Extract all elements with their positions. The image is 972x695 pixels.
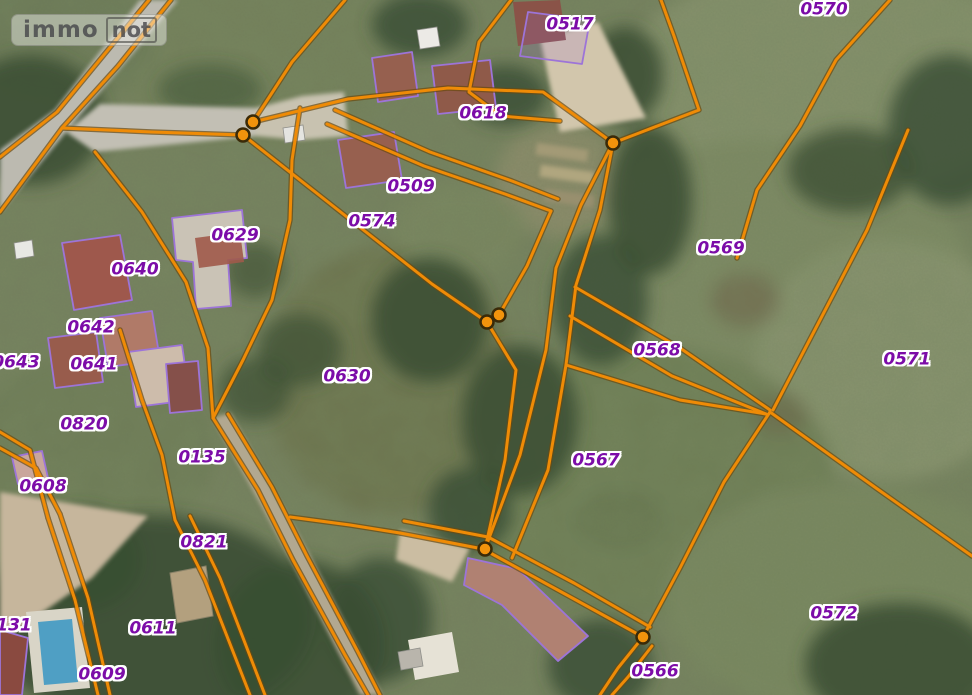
parcel-label-0509: 0509 [387,179,434,196]
boundary-vertex [247,116,260,129]
parcel-label-0640: 0640 [111,262,158,279]
parcel-label-0570: 0570 [800,2,847,19]
boundary-vertex [237,129,250,142]
parcel-label-131: 131 [0,618,32,635]
parcel-label-0566: 0566 [631,664,678,681]
parcel-label-0569: 0569 [697,241,744,258]
parcel-label-0611: 0611 [129,621,176,638]
parcel-label-0630: 0630 [323,369,370,386]
boundary-vertex [493,309,506,322]
parcel-label-0609: 0609 [78,667,125,684]
parcel-label-0643: 0643 [0,355,40,372]
immonot-logo: immo not [11,14,167,46]
parcel-label-0821: 0821 [180,535,227,552]
boundary-vertex [479,543,492,556]
parcel-label-0571: 0571 [883,352,930,369]
logo-text-immo: immo [23,17,99,43]
parcel-label-0618: 0618 [459,106,506,123]
cadastral-map-view[interactable]: 0517057006180509057406290640064206430641… [0,0,972,695]
parcel-label-0629: 0629 [211,228,258,245]
parcel-label-0567: 0567 [572,453,619,470]
boundary-vertex [637,631,650,644]
parcel-label-0820: 0820 [60,417,107,434]
parcel-label-0608: 0608 [19,479,66,496]
parcel-label-0642: 0642 [67,320,114,337]
parcel-label-0572: 0572 [810,606,857,623]
boundary-vertex [481,316,494,329]
parcel-label-0517: 0517 [546,17,593,34]
parcel-label-0568: 0568 [633,343,680,360]
logo-text-not: not [106,17,157,43]
parcel-label-0574: 0574 [348,214,395,231]
parcel-label-0135: 0135 [178,450,225,467]
parcel-label-0641: 0641 [70,357,117,374]
boundary-vertex [607,137,620,150]
